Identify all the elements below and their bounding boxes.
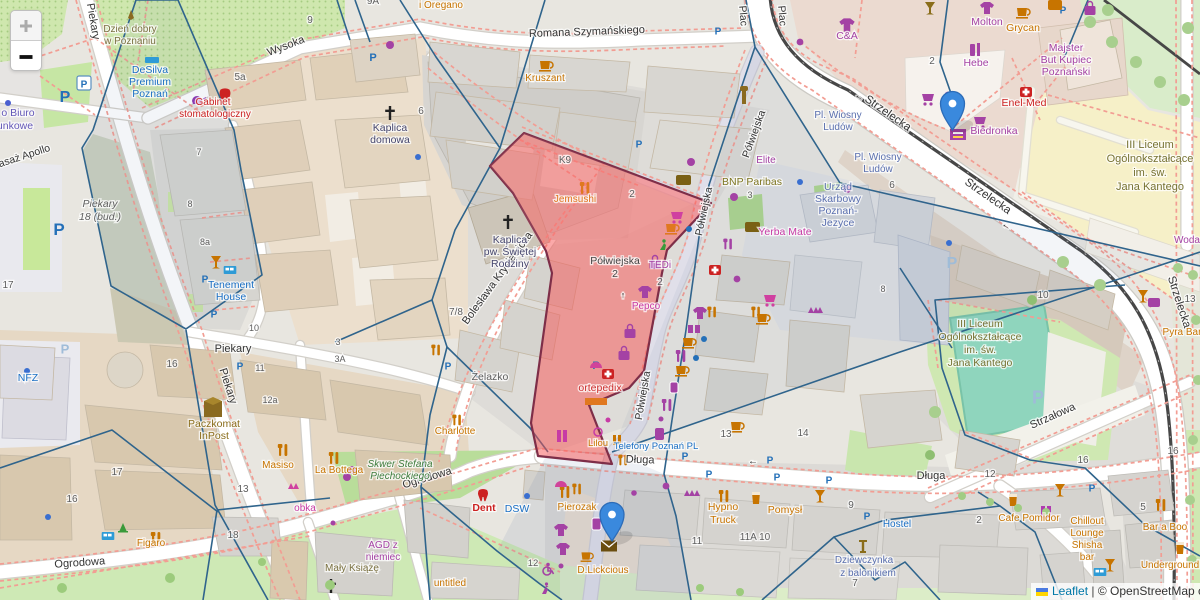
svg-text:Masiso: Masiso <box>262 460 294 471</box>
svg-text:III Liceum: III Liceum <box>1126 139 1174 151</box>
svg-text:AGD z: AGD z <box>368 540 397 551</box>
svg-text:Kaplica: Kaplica <box>373 122 408 134</box>
svg-text:Pl. Wiosny: Pl. Wiosny <box>854 152 901 163</box>
svg-text:Pyra Bar: Pyra Bar <box>1163 327 1200 338</box>
svg-text:9: 9 <box>307 15 313 26</box>
svg-text:Ogólnokształcące: Ogólnokształcące <box>1107 153 1194 165</box>
svg-text:Figaro: Figaro <box>137 538 166 549</box>
svg-text:o Biuro: o Biuro <box>1 107 34 119</box>
svg-text:Długa: Długa <box>917 470 947 482</box>
svg-text:Żelazko: Żelazko <box>472 370 509 383</box>
svg-text:P: P <box>864 512 871 523</box>
svg-text:16: 16 <box>1167 446 1179 457</box>
svg-text:P: P <box>81 80 88 91</box>
svg-text:Półwiejska: Półwiejska <box>590 255 640 267</box>
svg-text:Rodziny: Rodziny <box>491 258 530 270</box>
svg-text:stomatologiczny: stomatologiczny <box>179 109 251 120</box>
svg-text:P: P <box>237 362 244 373</box>
svg-text:z balonikiem: z balonikiem <box>840 568 896 579</box>
svg-text:P: P <box>767 456 774 467</box>
svg-text:D.Lickcious: D.Lickcious <box>577 565 628 576</box>
svg-text:13: 13 <box>720 429 732 440</box>
svg-text:bar: bar <box>1080 552 1095 563</box>
svg-text:Plac: Plac <box>736 5 750 26</box>
svg-text:P: P <box>60 89 71 106</box>
svg-text:Pierozak: Pierozak <box>558 502 598 513</box>
svg-text:Pepco: Pepco <box>632 301 661 312</box>
svg-text:Jana Kantego: Jana Kantego <box>1116 181 1184 193</box>
svg-text:DSW: DSW <box>505 503 530 515</box>
svg-text:P: P <box>706 470 713 481</box>
svg-text:P: P <box>61 342 70 357</box>
svg-text:3: 3 <box>335 337 340 347</box>
svg-text:Yerba Mate: Yerba Mate <box>758 226 811 238</box>
svg-text:untitled: untitled <box>434 578 466 589</box>
svg-text:Grycan: Grycan <box>1006 22 1040 34</box>
svg-text:BNP Paribas: BNP Paribas <box>722 176 782 188</box>
svg-text:Hypno: Hypno <box>708 501 739 513</box>
svg-text:Chillout: Chillout <box>1070 516 1104 527</box>
svg-text:Dziewczynka: Dziewczynka <box>835 555 894 566</box>
svg-text:Piekary: Piekary <box>82 198 118 210</box>
svg-text:But Kupiec: But Kupiec <box>1041 54 1092 66</box>
svg-text:11: 11 <box>255 363 264 373</box>
svg-text:8: 8 <box>187 199 192 209</box>
svg-text:TEDi: TEDi <box>649 260 671 271</box>
svg-text:Tenement: Tenement <box>208 279 254 291</box>
svg-text:Ogólnokształcące: Ogólnokształcące <box>939 331 1022 343</box>
svg-text:11A 10: 11A 10 <box>740 532 771 543</box>
svg-text:Gabinet: Gabinet <box>195 97 230 108</box>
svg-text:12: 12 <box>528 558 539 569</box>
svg-text:Majster: Majster <box>1049 42 1084 54</box>
svg-text:Bar a Boo: Bar a Boo <box>1143 522 1188 533</box>
svg-text:Skwer Stefana: Skwer Stefana <box>367 459 432 470</box>
svg-text:←: ← <box>748 456 758 467</box>
svg-text:P: P <box>826 476 833 487</box>
svg-text:DeSilva: DeSilva <box>132 64 168 76</box>
svg-text:C&A: C&A <box>836 30 858 42</box>
svg-text:im. św.: im. św. <box>964 344 996 356</box>
svg-text:Lounge: Lounge <box>1070 528 1104 539</box>
svg-text:6: 6 <box>889 180 895 191</box>
svg-text:14: 14 <box>797 428 809 439</box>
svg-text:5: 5 <box>1140 502 1146 513</box>
svg-text:Piechockiego: Piechockiego <box>370 471 430 482</box>
svg-text:P: P <box>947 255 958 272</box>
svg-text:2: 2 <box>976 515 982 526</box>
svg-text:3A: 3A <box>334 354 345 364</box>
svg-text:2: 2 <box>929 56 935 67</box>
svg-text:Pomysł: Pomysł <box>768 504 803 516</box>
svg-text:18 (bud.): 18 (bud.) <box>79 211 121 223</box>
svg-text:Kruszant: Kruszant <box>525 73 565 84</box>
svg-text:La Bottega: La Bottega <box>315 465 364 476</box>
svg-text:P: P <box>682 452 689 463</box>
svg-text:5a: 5a <box>234 72 246 83</box>
svg-text:Plac: Plac <box>775 5 789 26</box>
svg-text:w Poznaniu: w Poznaniu <box>103 36 156 47</box>
svg-text:Jezyce: Jezyce <box>822 217 855 229</box>
svg-text:niemiec: niemiec <box>366 552 400 563</box>
svg-text:Enel-Med: Enel-Med <box>1002 97 1047 109</box>
svg-text:Cafe Pomidor: Cafe Pomidor <box>998 513 1060 524</box>
svg-text:Underground: Underground <box>1141 560 1199 571</box>
svg-text:6: 6 <box>418 106 424 117</box>
svg-text:Charlotte: Charlotte <box>435 426 476 437</box>
svg-text:Mały Książę: Mały Książę <box>325 563 379 574</box>
svg-text:InPost: InPost <box>199 430 229 442</box>
svg-text:P: P <box>1032 387 1044 407</box>
svg-text:Molton: Molton <box>971 16 1003 28</box>
svg-text:Pl. Wiosny: Pl. Wiosny <box>814 110 861 121</box>
svg-text:Hebe: Hebe <box>963 57 988 69</box>
svg-text:III Liceum: III Liceum <box>957 318 1003 330</box>
svg-text:Woda: Woda <box>1174 235 1200 246</box>
svg-text:Shisha: Shisha <box>1072 540 1103 551</box>
svg-text:9: 9 <box>848 500 854 511</box>
svg-text:10: 10 <box>1037 290 1049 301</box>
svg-text:Jemsushi: Jemsushi <box>554 194 596 205</box>
svg-text:11: 11 <box>692 536 703 547</box>
svg-text:Piekary: Piekary <box>215 343 252 355</box>
svg-text:7: 7 <box>196 147 201 157</box>
svg-text:18: 18 <box>227 530 239 541</box>
svg-text:P: P <box>774 473 781 484</box>
svg-text:17: 17 <box>111 467 123 478</box>
svg-text:Paczkomat: Paczkomat <box>188 418 240 430</box>
svg-text:im. św.: im. św. <box>1133 167 1167 179</box>
svg-text:P: P <box>715 27 722 38</box>
svg-text:2: 2 <box>629 189 635 200</box>
svg-text:domowa: domowa <box>370 134 410 146</box>
svg-text:16: 16 <box>1077 455 1089 466</box>
svg-text:8: 8 <box>880 284 885 294</box>
svg-text:8a: 8a <box>200 237 210 247</box>
svg-text:NFZ: NFZ <box>18 372 39 384</box>
svg-text:Biedronka: Biedronka <box>970 125 1017 137</box>
svg-text:Dent: Dent <box>472 502 496 514</box>
svg-text:Lilou: Lilou <box>588 438 608 449</box>
svg-text:P: P <box>1089 484 1096 495</box>
svg-text:12a: 12a <box>262 395 277 405</box>
svg-text:P: P <box>53 220 64 239</box>
svg-text:Premium: Premium <box>129 76 171 88</box>
svg-text:7: 7 <box>852 578 858 589</box>
svg-text:16: 16 <box>66 494 78 505</box>
svg-text:obka: obka <box>294 503 316 514</box>
svg-text:Hostel: Hostel <box>883 519 911 530</box>
svg-text:K9: K9 <box>559 155 572 166</box>
svg-text:i Oregano: i Oregano <box>419 0 463 11</box>
svg-text:Długa: Długa <box>626 454 656 467</box>
svg-text:↑: ↑ <box>621 290 626 300</box>
svg-text:7/8: 7/8 <box>449 307 463 318</box>
svg-text:Poznań-: Poznań- <box>818 205 858 217</box>
svg-text:9A: 9A <box>367 0 380 7</box>
svg-text:13: 13 <box>237 484 249 495</box>
svg-text:Poznań: Poznań <box>132 88 168 100</box>
svg-text:13: 13 <box>1184 294 1196 305</box>
svg-text:P: P <box>211 310 218 321</box>
svg-text:2: 2 <box>612 268 618 280</box>
svg-text:P: P <box>369 52 376 64</box>
svg-text:P: P <box>445 362 452 373</box>
svg-text:Jana Kantego: Jana Kantego <box>948 357 1013 369</box>
svg-text:P: P <box>636 140 643 151</box>
svg-text:Truck: Truck <box>710 514 737 526</box>
svg-text:Telefony Poznań PL: Telefony Poznań PL <box>614 441 699 452</box>
svg-text:ortepedix: ortepedix <box>578 382 622 394</box>
svg-text:Ludów: Ludów <box>823 122 853 133</box>
svg-text:Poznański: Poznański <box>1042 66 1090 78</box>
svg-text:16: 16 <box>166 359 178 370</box>
svg-text:12: 12 <box>984 469 996 480</box>
svg-text:House: House <box>216 291 247 303</box>
svg-text:10: 10 <box>249 323 259 333</box>
svg-text:pw. Świętej: pw. Świętej <box>484 245 537 258</box>
svg-text:3: 3 <box>747 190 752 200</box>
svg-text:17: 17 <box>2 280 14 291</box>
svg-text:Urząd: Urząd <box>824 181 852 193</box>
svg-text:Skarbowy: Skarbowy <box>815 193 862 205</box>
svg-text:Elite: Elite <box>756 155 776 166</box>
svg-text:Ludów: Ludów <box>863 164 893 175</box>
svg-text:Dzień dobry: Dzień dobry <box>103 24 156 35</box>
svg-text:Kaplica: Kaplica <box>493 234 528 246</box>
svg-text:unkowe: unkowe <box>0 120 33 132</box>
svg-text:2: 2 <box>657 277 663 288</box>
